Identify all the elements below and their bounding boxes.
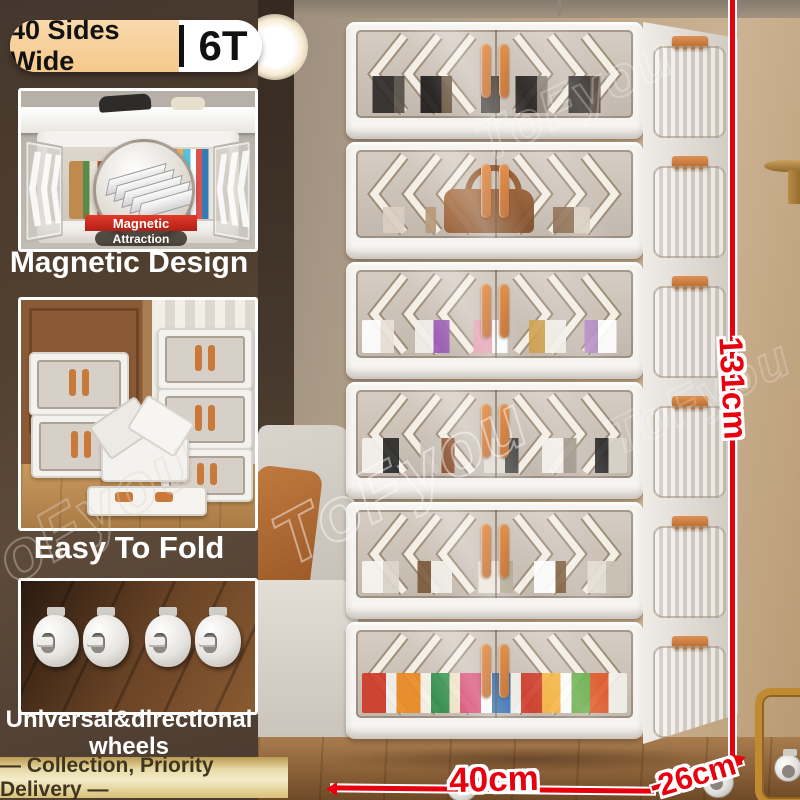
badge-tier-label: 6T bbox=[184, 20, 262, 72]
door-handle-left bbox=[481, 284, 491, 338]
width-arrow bbox=[326, 782, 337, 796]
storage-cabinet bbox=[346, 22, 738, 746]
tier-window bbox=[356, 510, 633, 598]
door-split bbox=[495, 150, 497, 238]
chevron-pattern bbox=[356, 510, 633, 598]
card1-open-door-left bbox=[25, 139, 63, 243]
wheel-illustration bbox=[83, 615, 129, 669]
tier-window bbox=[356, 630, 633, 718]
tier-contents bbox=[362, 673, 627, 713]
caption-easy-to-fold: Easy To Fold bbox=[0, 530, 258, 566]
card1-desk-object bbox=[171, 97, 205, 110]
door-handle-left bbox=[481, 404, 491, 458]
side-emboss bbox=[653, 46, 726, 138]
caption-wheels-line1: Universal&directional bbox=[0, 706, 258, 733]
wheel-illustration bbox=[195, 615, 241, 669]
door-split bbox=[495, 510, 497, 598]
storage-tier bbox=[346, 22, 643, 139]
caption-wheels: Universal&directional wheels bbox=[0, 706, 258, 760]
door-split bbox=[495, 630, 497, 718]
chevron-pattern bbox=[356, 390, 633, 478]
tier-window bbox=[356, 270, 633, 358]
door-handle-right bbox=[499, 524, 509, 578]
side-segment bbox=[649, 156, 730, 264]
storage-tier bbox=[346, 502, 643, 619]
storage-tier bbox=[346, 382, 643, 499]
width-label: 40cm bbox=[449, 759, 540, 800]
card1-desk bbox=[18, 107, 258, 133]
tier-window bbox=[356, 150, 633, 238]
side-emboss bbox=[653, 526, 726, 618]
side-segment bbox=[649, 36, 730, 144]
tier-window bbox=[356, 390, 633, 478]
wheel-illustration bbox=[33, 615, 79, 669]
door-handle-left bbox=[481, 644, 491, 698]
door-split bbox=[495, 30, 497, 118]
delivery-banner: — Collection, Priority Delivery — bbox=[0, 757, 288, 798]
side-emboss bbox=[653, 646, 726, 738]
side-emboss bbox=[653, 166, 726, 258]
feature-card-fold bbox=[18, 297, 258, 531]
chevron-pattern bbox=[356, 150, 633, 238]
height-label: 131cm bbox=[711, 336, 754, 441]
door-handle-left bbox=[481, 164, 491, 218]
door-handle-left bbox=[481, 44, 491, 98]
door-handle-right bbox=[499, 404, 509, 458]
ceiling bbox=[258, 0, 800, 18]
gold-side-table bbox=[755, 688, 800, 800]
door-split bbox=[495, 270, 497, 358]
door-handle-right bbox=[499, 44, 509, 98]
door-handle-right bbox=[499, 164, 509, 218]
folded-box bbox=[29, 352, 129, 416]
feature-card-wheels bbox=[18, 578, 258, 715]
chevron-pattern bbox=[356, 630, 633, 718]
storage-tier bbox=[346, 142, 643, 259]
door-handle-right bbox=[499, 284, 509, 338]
storage-tier bbox=[346, 262, 643, 379]
tier-contents bbox=[362, 76, 627, 113]
tier-contents bbox=[362, 207, 627, 233]
feature-card-magnetic: Magnetic Attraction bbox=[18, 88, 258, 252]
product-poster: ToFyou ToFyou ToFyou ToFyou 131cm 40cm 2… bbox=[0, 0, 800, 800]
wheel-illustration bbox=[145, 615, 191, 669]
caption-magnetic-design: Magnetic Design bbox=[0, 246, 258, 280]
chevron-pattern bbox=[356, 270, 633, 358]
tier-contents bbox=[362, 438, 627, 473]
magnetic-ribbon: Magnetic bbox=[85, 215, 197, 231]
sofa-seat bbox=[258, 580, 358, 745]
storage-tier bbox=[346, 622, 643, 739]
folded-box bbox=[157, 328, 253, 390]
door-split bbox=[495, 390, 497, 478]
size-badge: 40 Sides Wide 6T bbox=[10, 20, 262, 72]
wall-sconce-body bbox=[788, 170, 800, 204]
flat-folded-box bbox=[87, 486, 207, 516]
tier-window bbox=[356, 30, 633, 118]
side-segment bbox=[649, 516, 730, 624]
pendant-cord bbox=[558, 0, 561, 16]
door-handle-right bbox=[499, 644, 509, 698]
tier-contents bbox=[362, 561, 627, 593]
door-handle-left bbox=[481, 524, 491, 578]
badge-sides-label: 40 Sides Wide bbox=[10, 20, 179, 72]
caster-wheel bbox=[774, 754, 800, 782]
attraction-pill: Attraction bbox=[95, 231, 187, 246]
feature-sidebar: 40 Sides Wide 6T bbox=[0, 0, 258, 800]
card1-open-door-right bbox=[213, 139, 251, 243]
cabinet-front bbox=[346, 22, 643, 739]
chevron-pattern bbox=[356, 30, 633, 118]
tier-contents bbox=[362, 320, 627, 353]
side-segment bbox=[649, 636, 730, 744]
